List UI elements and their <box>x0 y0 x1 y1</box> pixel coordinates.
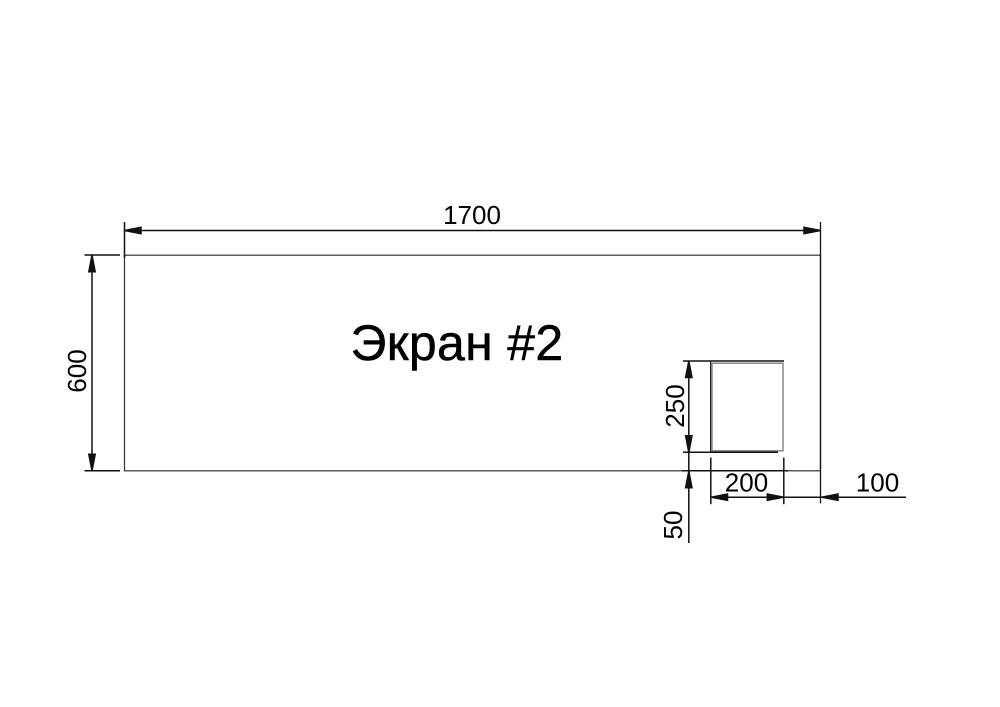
svg-text:200: 200 <box>725 468 768 498</box>
svg-text:Экран #2: Экран #2 <box>351 315 564 371</box>
svg-text:100: 100 <box>856 468 899 498</box>
svg-text:250: 250 <box>660 384 690 427</box>
svg-text:600: 600 <box>62 349 92 392</box>
svg-text:50: 50 <box>658 511 688 540</box>
svg-text:1700: 1700 <box>443 200 501 230</box>
